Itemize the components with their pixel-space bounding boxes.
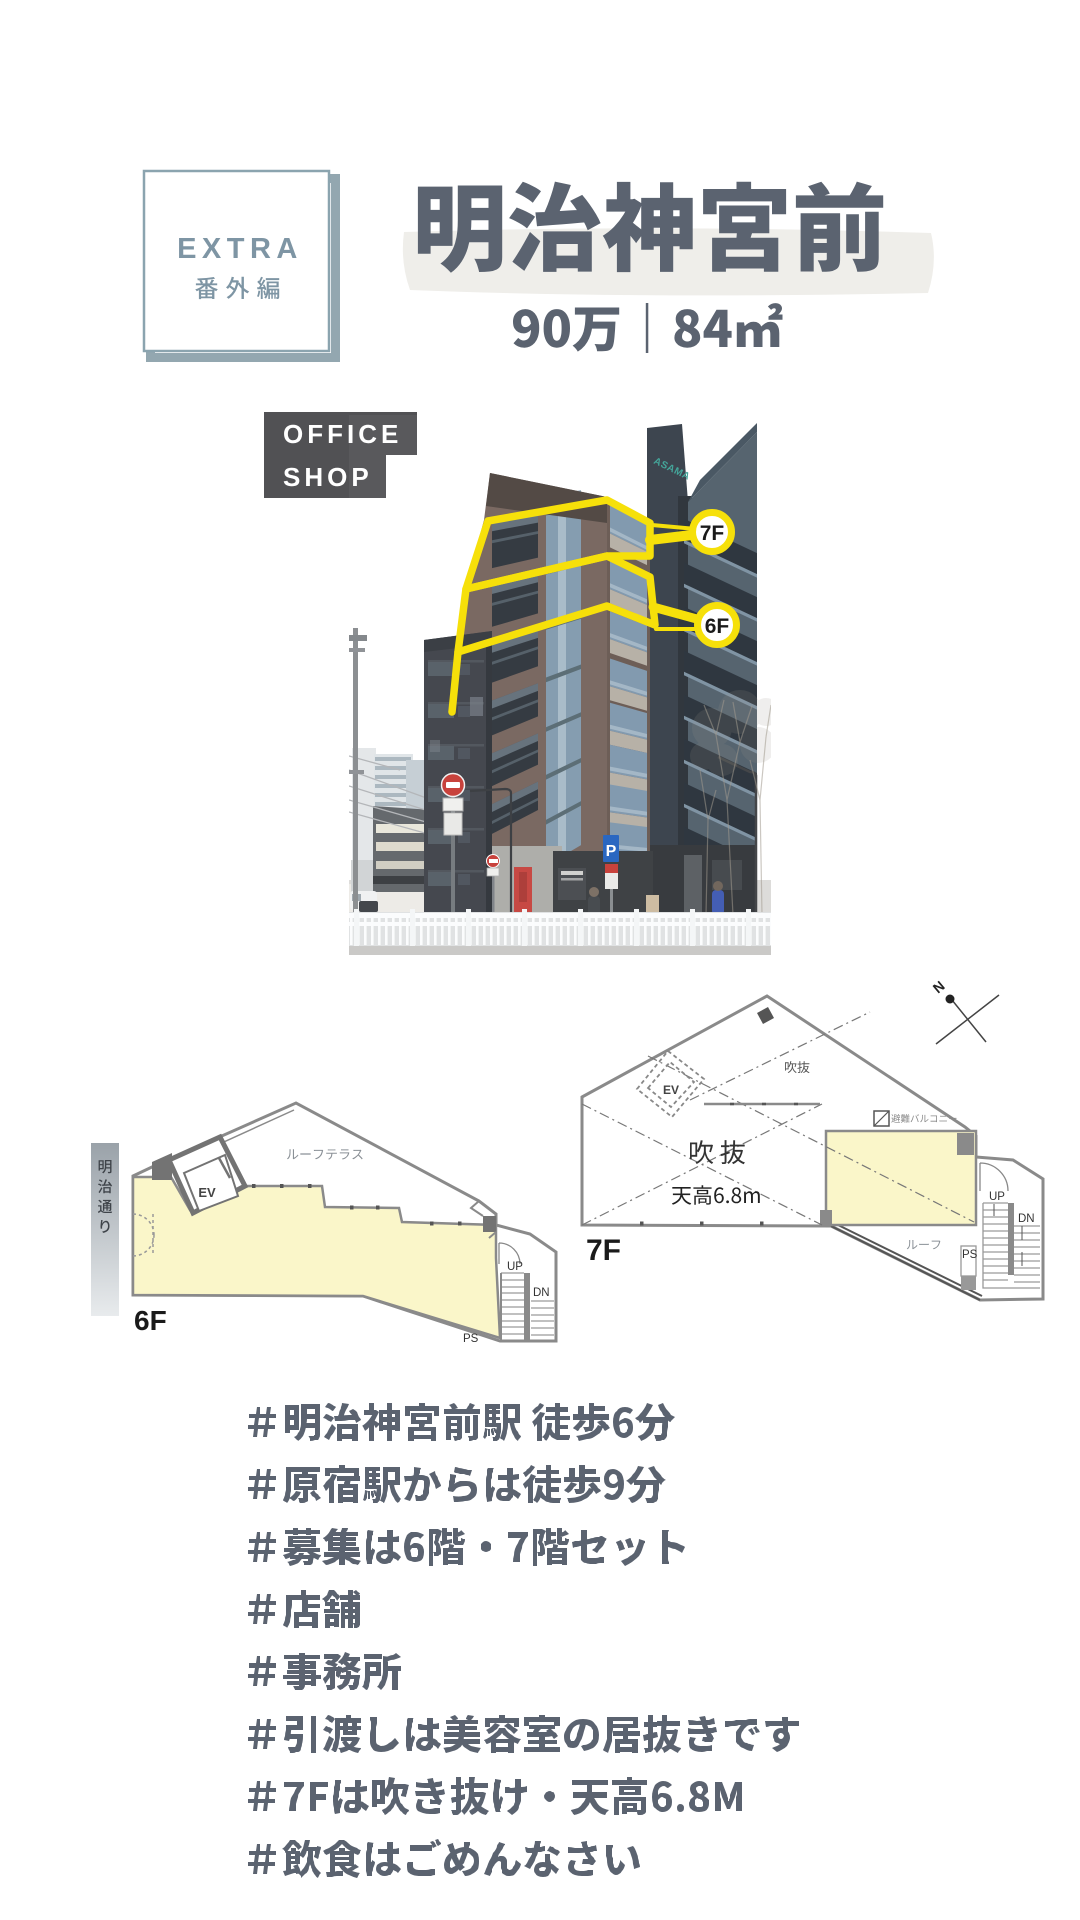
svg-text:UP: UP [989, 1191, 1005, 1203]
svg-text:EV: EV [663, 1083, 679, 1097]
svg-text:DN: DN [533, 1287, 550, 1299]
svg-text:DN: DN [1018, 1213, 1035, 1225]
svg-text:6F: 6F [134, 1305, 167, 1336]
svg-text:PS: PS [463, 1333, 479, 1345]
svg-text:7F: 7F [700, 522, 725, 545]
svg-text:UP: UP [507, 1261, 523, 1273]
svg-text:PS: PS [962, 1249, 978, 1261]
svg-text:7F: 7F [586, 1234, 621, 1267]
svg-text:EXTRA: EXTRA [177, 233, 303, 265]
svg-text:EV: EV [198, 1185, 216, 1200]
svg-text:6F: 6F [705, 615, 730, 638]
